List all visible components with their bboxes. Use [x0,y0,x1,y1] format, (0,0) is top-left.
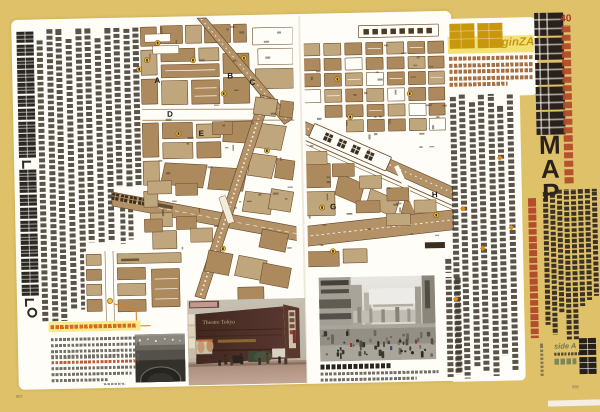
svg-text:B: B [227,71,233,80]
svg-text:C: C [249,78,255,87]
svg-text:D: D [167,110,173,119]
svg-text:A: A [154,76,160,85]
svg-text:G: G [330,202,336,211]
svg-text:E: E [198,129,204,138]
svg-text:Theatre Tokyo: Theatre Tokyo [202,319,235,326]
svg-text:H: H [432,190,438,199]
